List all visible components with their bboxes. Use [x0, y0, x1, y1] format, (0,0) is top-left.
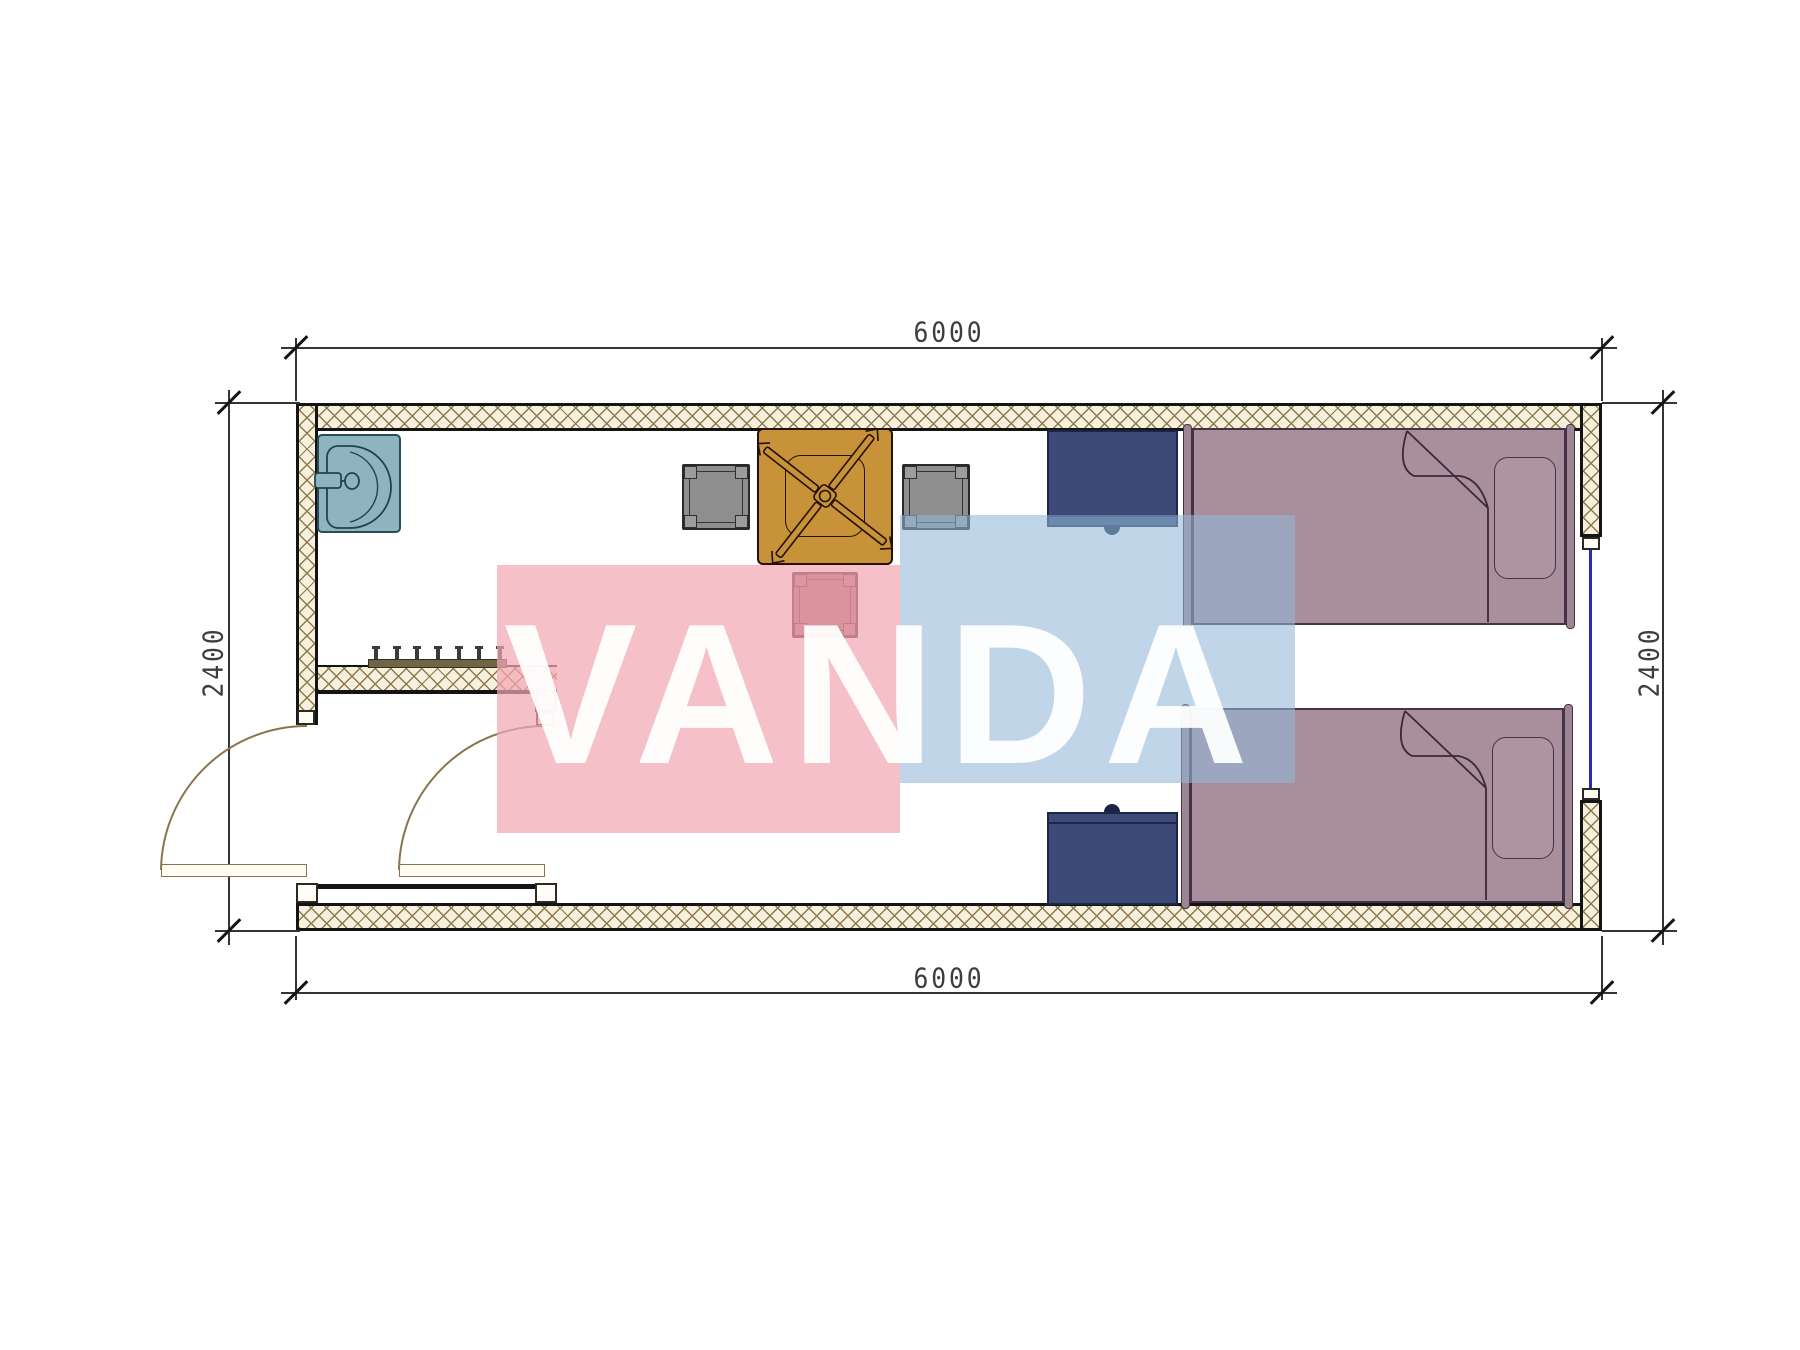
- pillow-top: [1494, 457, 1556, 579]
- coat-hook: [395, 647, 399, 659]
- extension-line: [1602, 402, 1677, 404]
- chair-corner-post: [735, 466, 748, 479]
- dimension-label-left: 2400: [198, 627, 230, 698]
- window-frame-bottom: [1582, 788, 1600, 800]
- chair-corner-post: [904, 466, 917, 479]
- wall-partition: [318, 665, 557, 694]
- coat-hook: [374, 647, 378, 659]
- wall-bottom: [296, 903, 1602, 931]
- wall-partition-return: [535, 691, 557, 712]
- stool-corner-post: [794, 574, 807, 587]
- window-glazing: [1589, 550, 1592, 788]
- nightstand-bottom: [1047, 812, 1178, 905]
- nightstand-knob: [1104, 526, 1120, 535]
- extension-line: [1602, 930, 1677, 932]
- chair-corner-post: [684, 466, 697, 479]
- door-frame-bottom-mid: [535, 883, 557, 903]
- window-frame-top: [1582, 537, 1600, 550]
- coat-hook: [415, 647, 419, 659]
- coat-hook: [477, 647, 481, 659]
- bed-footboard: [1181, 704, 1190, 909]
- coat-hook: [457, 647, 461, 659]
- wall-left: [296, 403, 318, 725]
- door-frame-bottom-left: [296, 883, 318, 903]
- dimension-label-top: 6000: [914, 317, 985, 349]
- nightstand-edge-line: [1049, 515, 1176, 517]
- wall-right-lower: [1580, 800, 1602, 931]
- coat-hook: [436, 647, 440, 659]
- nightstand-knob: [1104, 804, 1120, 813]
- stool-corner-post: [843, 574, 856, 587]
- door-frame-partition: [536, 712, 554, 726]
- door-threshold-line: [318, 884, 535, 889]
- lineart-layer: [0, 0, 1800, 1350]
- door-swing-arc-right: [399, 726, 545, 870]
- sink: [317, 434, 401, 533]
- pillow-bottom: [1492, 737, 1554, 859]
- bed-headboard: [1564, 704, 1573, 909]
- chair-right: [902, 464, 970, 530]
- square-table: [757, 428, 893, 565]
- nightstand-edge-line: [1049, 822, 1176, 824]
- dimension-label-right: 2400: [1634, 627, 1666, 698]
- chair-corner-post: [684, 515, 697, 528]
- stool-corner-post: [794, 623, 807, 636]
- stool: [792, 572, 858, 638]
- door-swing-arc-left: [161, 726, 307, 870]
- chair-corner-post: [735, 515, 748, 528]
- wall-right-upper: [1580, 403, 1602, 537]
- chair-corner-post: [904, 515, 917, 528]
- chair-corner-post: [955, 466, 968, 479]
- nightstand-top: [1047, 430, 1178, 527]
- wall-top: [296, 403, 1602, 431]
- door-leaf-right: [399, 864, 545, 877]
- dimension-label-bottom: 6000: [914, 963, 985, 995]
- chair-corner-post: [955, 515, 968, 528]
- chair-left: [682, 464, 750, 530]
- coat-rack-bar: [368, 659, 507, 668]
- bed-headboard: [1566, 424, 1575, 629]
- stool-corner-post: [843, 623, 856, 636]
- coat-hook: [498, 647, 502, 659]
- floor-plan-canvas: 6000 6000 2400 2400: [0, 0, 1800, 1350]
- coat-rack-hooks: [374, 647, 502, 659]
- door-frame-left-wall: [297, 710, 315, 725]
- bed-footboard: [1183, 424, 1192, 629]
- door-leaf-left: [161, 864, 307, 877]
